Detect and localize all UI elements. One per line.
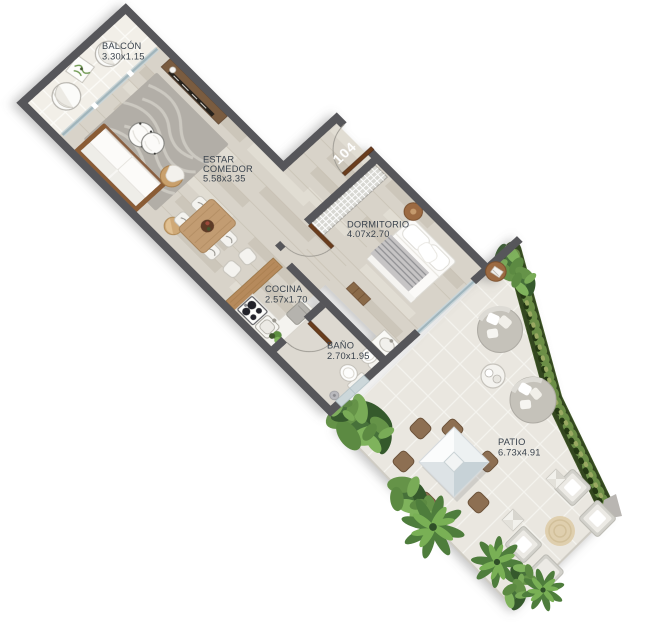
- svg-text:5.58x3.35: 5.58x3.35: [203, 173, 246, 183]
- svg-text:2.70x1.95: 2.70x1.95: [327, 351, 370, 361]
- svg-text:BAÑO: BAÑO: [327, 341, 354, 351]
- svg-text:2.57x1.70: 2.57x1.70: [265, 295, 308, 305]
- svg-text:PATIO: PATIO: [498, 437, 526, 447]
- svg-text:BALCÓN: BALCÓN: [102, 41, 141, 51]
- svg-text:3.30x1.15: 3.30x1.15: [102, 52, 145, 62]
- svg-text:6.73x4.91: 6.73x4.91: [498, 448, 541, 458]
- svg-text:4.07x2.70: 4.07x2.70: [347, 229, 390, 239]
- svg-text:COCINA: COCINA: [265, 284, 303, 294]
